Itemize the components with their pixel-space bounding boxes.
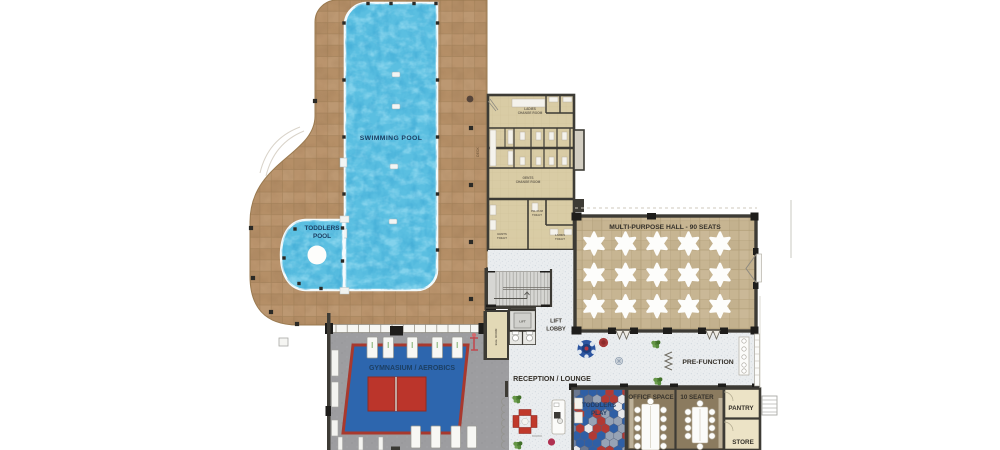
svg-text:TODDLERS: TODDLERS — [582, 402, 616, 409]
svg-text:MULTI-PURPOSE HALL - 90 SEATS: MULTI-PURPOSE HALL - 90 SEATS — [609, 224, 721, 231]
svg-text:SWIMMING POOL: SWIMMING POOL — [360, 135, 423, 142]
svg-text:POOL: POOL — [313, 233, 331, 240]
svg-text:CHANGE ROOM: CHANGE ROOM — [516, 180, 541, 184]
svg-text:RECEPTION / LOUNGE: RECEPTION / LOUNGE — [513, 375, 591, 383]
svg-text:LOBBY: LOBBY — [546, 327, 566, 333]
svg-text:CHANGE ROOM: CHANGE ROOM — [518, 111, 543, 115]
svg-text:STORE: STORE — [732, 439, 754, 446]
svg-text:ELE. ROOM: ELE. ROOM — [494, 328, 498, 345]
svg-text:DECK: DECK — [476, 147, 480, 157]
svg-text:LIFT: LIFT — [519, 320, 525, 324]
svg-text:TOILET: TOILET — [555, 237, 565, 241]
svg-text:PLAY: PLAY — [591, 410, 608, 417]
svg-text:TOILET: TOILET — [497, 236, 507, 240]
svg-text:PRE-FUNCTION: PRE-FUNCTION — [682, 359, 733, 366]
svg-text:10 SEATER: 10 SEATER — [680, 394, 714, 401]
svg-text:TOILET: TOILET — [532, 213, 542, 217]
svg-text:LIFT: LIFT — [550, 319, 562, 325]
svg-text:PANTRY: PANTRY — [728, 405, 754, 412]
svg-text:TODDLERS: TODDLERS — [304, 225, 340, 232]
svg-text:GYMNASIUM / AEROBICS: GYMNASIUM / AEROBICS — [369, 365, 455, 372]
